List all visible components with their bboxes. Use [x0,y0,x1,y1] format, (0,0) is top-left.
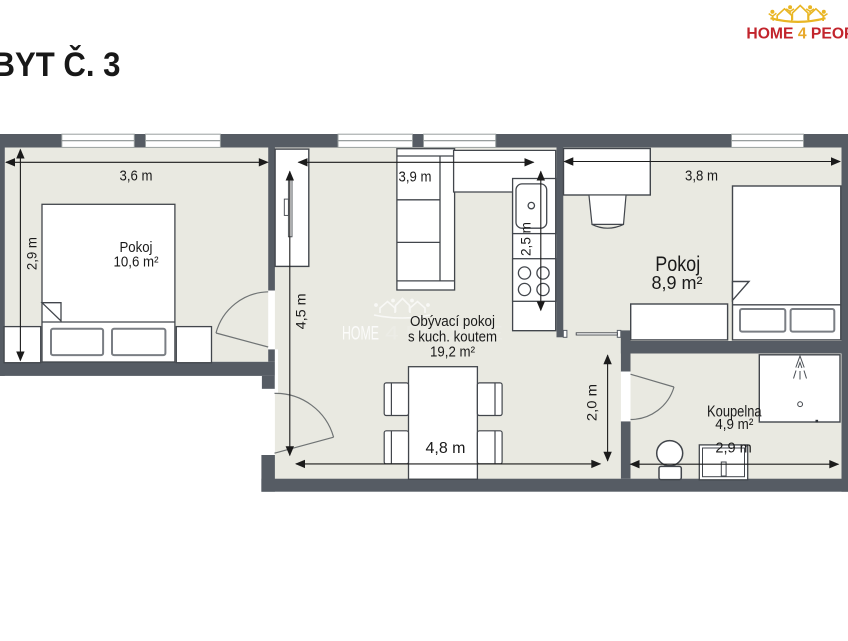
svg-text:HOME 4 PEOPLE: HOME 4 PEOPLE [746,25,848,42]
svg-text:2,0 m: 2,0 m [583,384,599,421]
svg-text:4,9 m²: 4,9 m² [715,416,753,433]
svg-text:Obývací pokoj: Obývací pokoj [410,314,495,330]
svg-text:HOME: HOME [342,324,379,345]
svg-text:BYT Č. 3: BYT Č. 3 [0,44,121,84]
svg-text:8,9 m²: 8,9 m² [652,273,703,293]
svg-text:4,5 m: 4,5 m [293,293,309,329]
svg-text:2,5 m: 2,5 m [517,222,533,256]
svg-text:3,9 m: 3,9 m [399,169,432,186]
svg-text:10,6 m²: 10,6 m² [114,255,159,271]
svg-text:2,9 m: 2,9 m [715,440,752,457]
svg-text:4,8 m: 4,8 m [426,440,466,457]
svg-text:19,2 m²: 19,2 m² [430,345,475,361]
svg-text:s kuch. koutem: s kuch. koutem [408,330,497,346]
svg-text:3,8 m: 3,8 m [685,168,718,185]
svg-text:2,9 m: 2,9 m [24,237,40,270]
svg-text:3,6 m: 3,6 m [120,168,153,185]
svg-text:Pokoj: Pokoj [120,240,153,256]
